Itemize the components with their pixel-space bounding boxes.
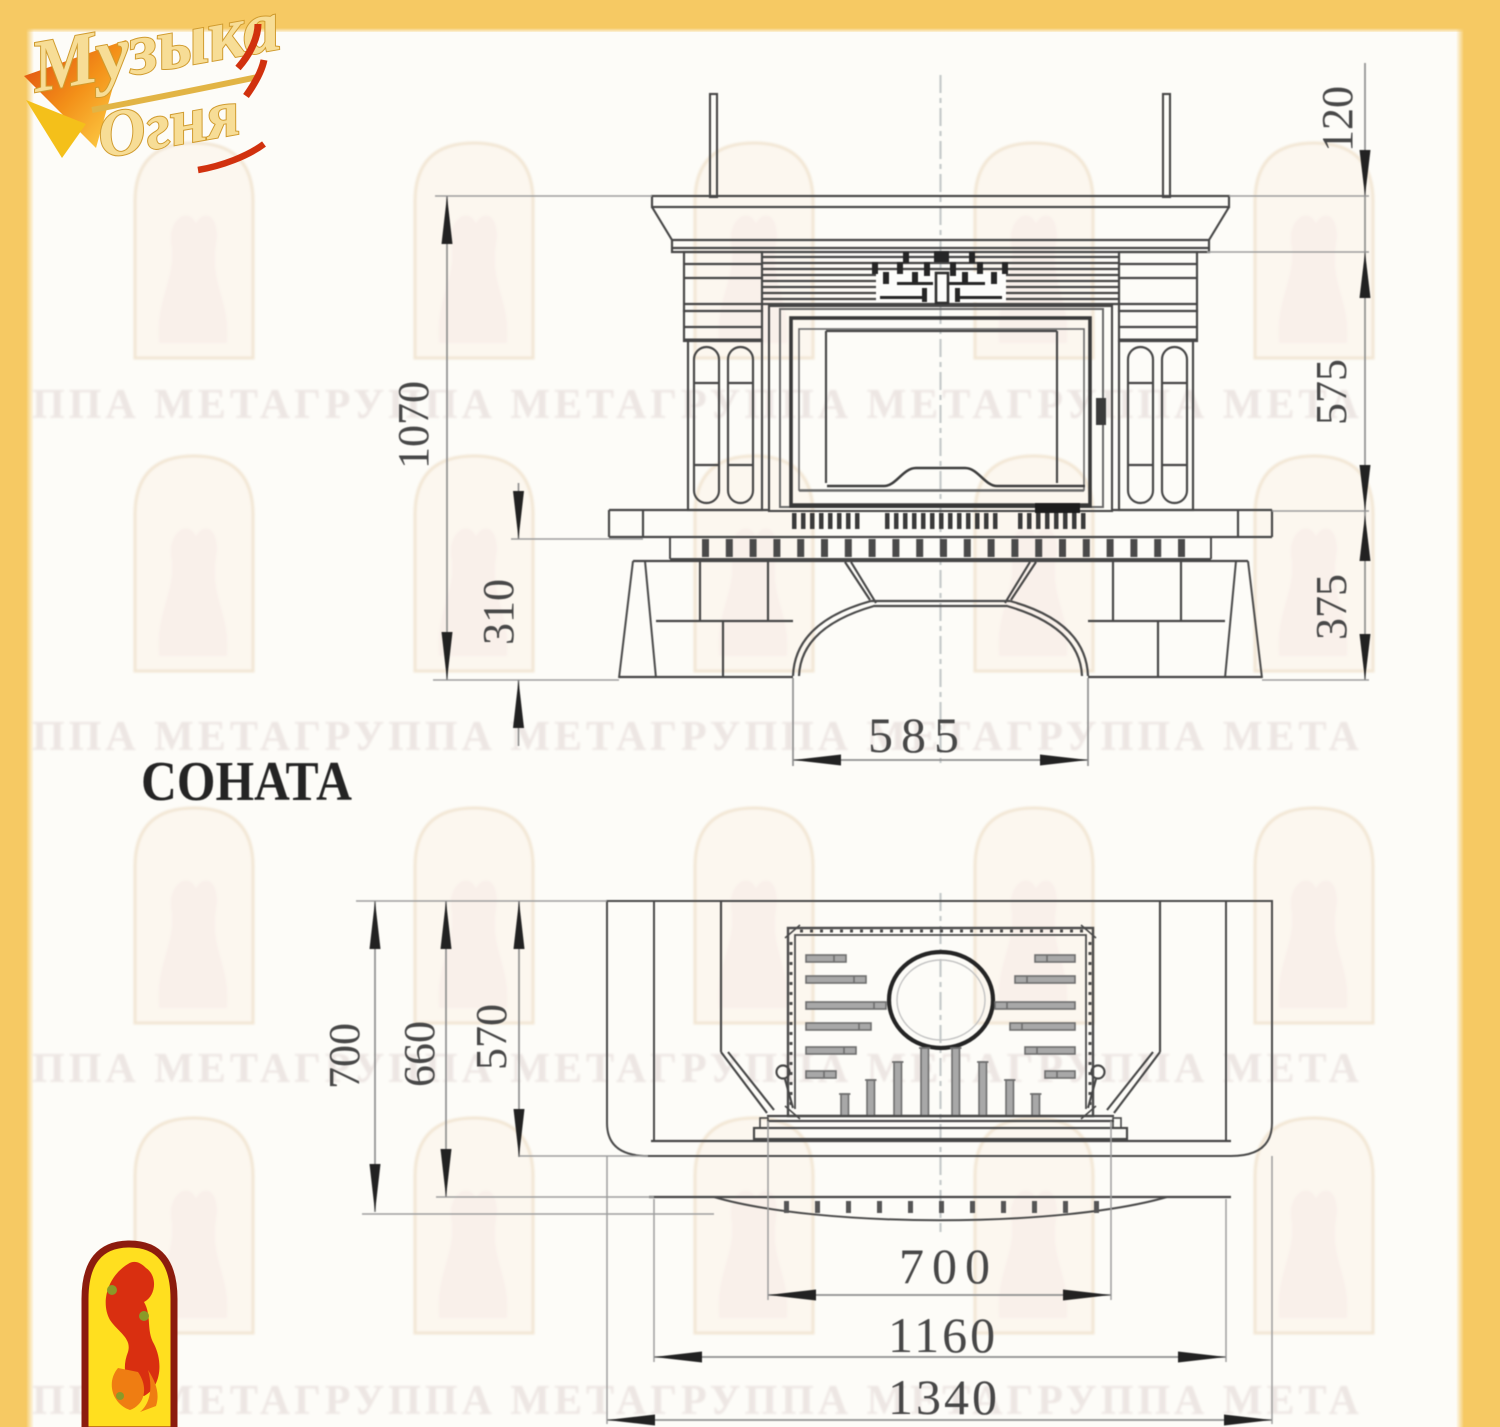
- svg-text:375: 375: [1307, 574, 1356, 640]
- svg-text:700: 700: [899, 1238, 998, 1294]
- svg-text:1070: 1070: [389, 381, 438, 469]
- svg-text:310: 310: [474, 579, 523, 645]
- svg-text:700: 700: [320, 1023, 369, 1089]
- svg-text:СОНАТА: СОНАТА: [141, 751, 352, 813]
- svg-text:660: 660: [395, 1021, 444, 1087]
- svg-text:570: 570: [467, 1004, 516, 1070]
- svg-text:120: 120: [1313, 86, 1362, 152]
- svg-text:585: 585: [868, 707, 967, 763]
- svg-text:1340: 1340: [888, 1369, 1000, 1425]
- svg-text:1160: 1160: [888, 1307, 998, 1363]
- svg-text:575: 575: [1307, 359, 1356, 425]
